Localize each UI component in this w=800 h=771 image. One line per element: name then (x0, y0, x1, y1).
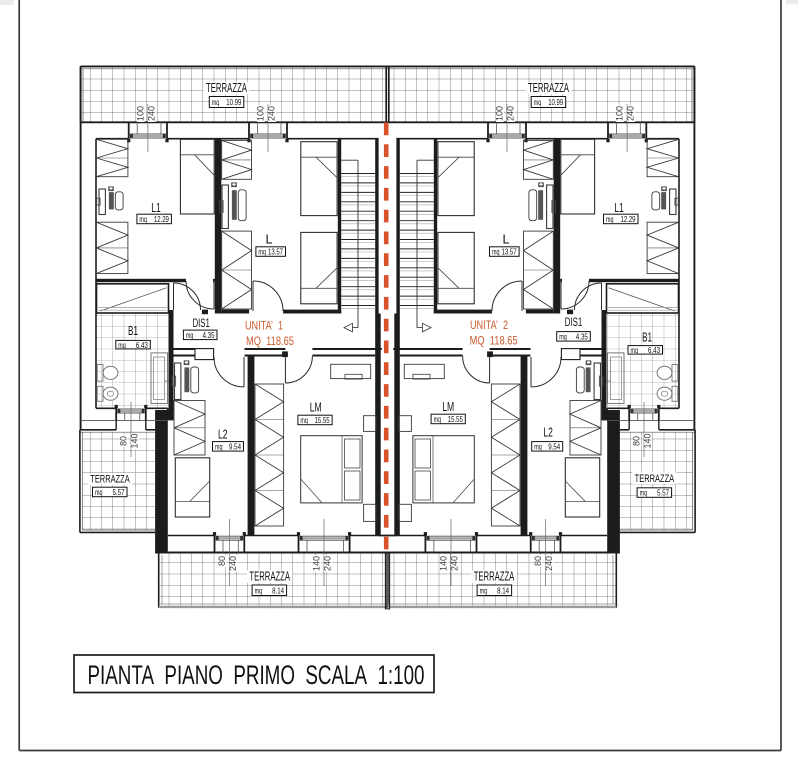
svg-text:mq: mq (139, 215, 147, 224)
svg-text:100: 100 (494, 106, 504, 121)
svg-text:MQ 118.65: MQ 118.65 (246, 336, 294, 348)
svg-text:13.57: 13.57 (502, 248, 517, 257)
svg-text:5.57: 5.57 (657, 489, 669, 498)
svg-text:140: 140 (311, 556, 321, 571)
svg-text:13.57: 13.57 (268, 248, 283, 257)
svg-text:B1: B1 (642, 330, 652, 345)
svg-text:240: 240 (322, 556, 332, 571)
svg-text:DIS1: DIS1 (565, 315, 583, 329)
svg-text:140: 140 (642, 433, 652, 448)
svg-text:240: 240 (626, 106, 636, 121)
svg-text:4.35: 4.35 (576, 332, 588, 341)
svg-text:9.54: 9.54 (548, 442, 560, 451)
svg-text:15.55: 15.55 (315, 416, 330, 425)
svg-text:100: 100 (135, 106, 145, 121)
svg-text:L1: L1 (614, 200, 624, 215)
svg-text:9.54: 9.54 (229, 442, 241, 451)
svg-text:mq: mq (492, 248, 500, 257)
svg-text:L2: L2 (218, 426, 228, 441)
svg-text:mq: mq (559, 332, 567, 341)
svg-text:240: 240 (228, 556, 238, 571)
svg-text:240: 240 (505, 106, 515, 121)
svg-text:15.55: 15.55 (448, 415, 463, 424)
svg-text:6.43: 6.43 (136, 341, 148, 350)
svg-text:UNITA’ 1: UNITA’ 1 (245, 320, 283, 332)
svg-text:mq: mq (255, 586, 263, 595)
svg-text:mq: mq (434, 415, 442, 424)
svg-text:mq: mq (480, 586, 488, 595)
svg-text:L: L (503, 232, 510, 247)
svg-text:LM: LM (442, 399, 454, 414)
svg-text:mq: mq (258, 248, 266, 257)
svg-text:mq: mq (212, 98, 220, 107)
svg-text:8.14: 8.14 (497, 586, 509, 595)
svg-text:mq: mq (534, 98, 542, 107)
svg-text:MQ 118.65: MQ 118.65 (470, 336, 518, 348)
svg-text:240: 240 (449, 556, 459, 571)
svg-text:240: 240 (544, 556, 554, 571)
svg-text:80: 80 (118, 436, 128, 446)
svg-text:mq: mq (300, 416, 308, 425)
svg-text:L1: L1 (151, 200, 161, 215)
svg-text:10.99: 10.99 (548, 98, 563, 107)
svg-text:TERRAZZA: TERRAZZA (249, 569, 290, 584)
svg-text:6.43: 6.43 (648, 346, 660, 355)
svg-text:140: 140 (438, 556, 448, 571)
svg-text:240: 240 (146, 106, 156, 121)
svg-text:mq: mq (640, 489, 648, 498)
svg-text:100: 100 (615, 106, 625, 121)
svg-text:10.99: 10.99 (226, 98, 241, 107)
svg-text:8.14: 8.14 (272, 586, 284, 595)
svg-text:140: 140 (129, 433, 139, 448)
svg-text:12.29: 12.29 (154, 215, 169, 224)
svg-text:DIS1: DIS1 (192, 316, 210, 330)
svg-text:240: 240 (266, 106, 276, 121)
svg-text:L: L (266, 232, 273, 247)
svg-text:TERRAZZA: TERRAZZA (635, 473, 675, 485)
svg-text:TERRAZZA: TERRAZZA (474, 569, 515, 584)
svg-text:TERRAZZA: TERRAZZA (528, 80, 569, 95)
svg-text:100: 100 (255, 106, 265, 121)
svg-text:TERRAZZA: TERRAZZA (90, 474, 130, 486)
svg-text:LM: LM (310, 400, 322, 415)
svg-text:PIANTA PIANO PRIMO SCALA 1: PIANTA PIANO PRIMO SCALA 1:100 (88, 660, 425, 690)
svg-text:B1: B1 (128, 323, 138, 338)
svg-text:mq: mq (186, 331, 194, 340)
svg-text:TERRAZZA: TERRAZZA (206, 80, 247, 95)
svg-text:mq: mq (534, 442, 542, 451)
svg-text:4.35: 4.35 (203, 331, 215, 340)
svg-text:mq: mq (606, 215, 614, 224)
svg-text:mq: mq (118, 341, 126, 350)
svg-text:80: 80 (217, 556, 227, 566)
svg-text:80: 80 (533, 556, 543, 566)
svg-text:UNITA’ 2: UNITA’ 2 (470, 320, 508, 332)
svg-text:mq: mq (631, 346, 639, 355)
svg-text:mq: mq (215, 442, 223, 451)
svg-text:mq: mq (95, 488, 103, 497)
svg-text:L2: L2 (543, 425, 553, 440)
svg-text:80: 80 (631, 436, 641, 446)
svg-text:5.57: 5.57 (113, 488, 125, 497)
svg-text:12.29: 12.29 (621, 215, 636, 224)
